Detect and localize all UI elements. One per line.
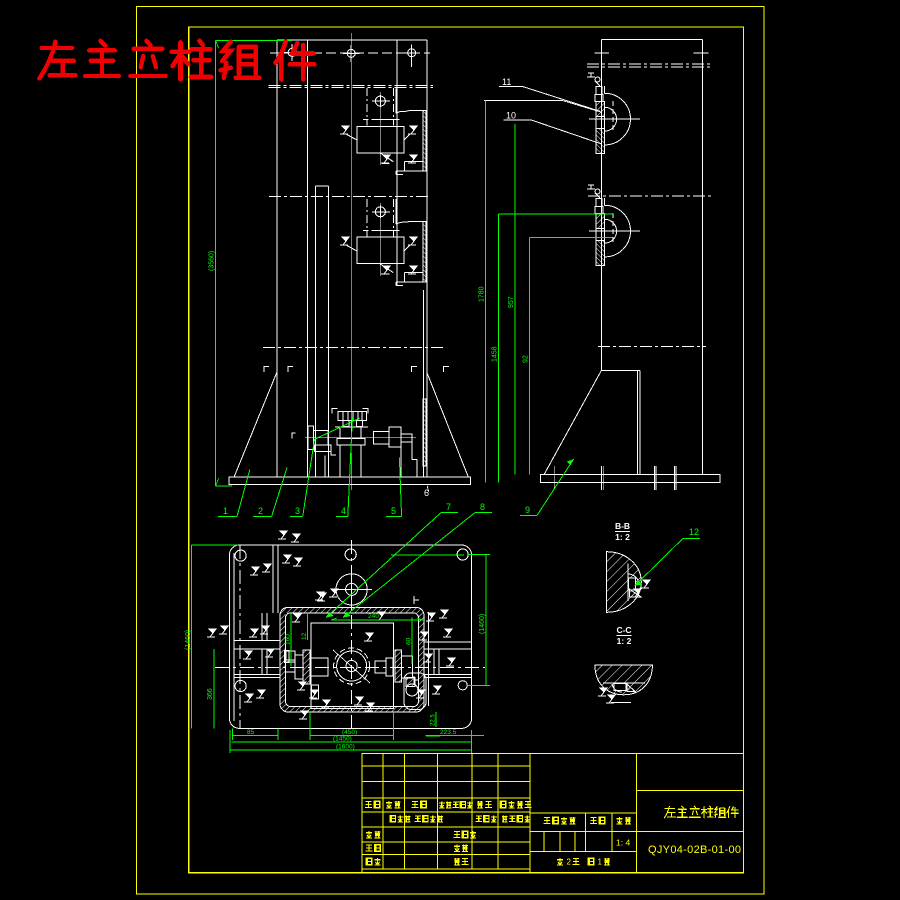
svg-text:1: 1: [598, 858, 603, 867]
svg-text:(1460): (1460): [185, 630, 192, 650]
svg-text:C-C: C-C: [616, 625, 631, 635]
svg-text:(1450): (1450): [333, 736, 352, 743]
svg-text:60: 60: [406, 637, 413, 645]
svg-text:(1460): (1460): [479, 614, 486, 634]
svg-text:8: 8: [480, 502, 485, 512]
svg-text:2: 2: [258, 506, 263, 516]
svg-text:10: 10: [506, 111, 516, 121]
svg-text:(1600): (1600): [336, 744, 355, 751]
svg-text:2: 2: [567, 858, 572, 867]
svg-text:3: 3: [295, 506, 300, 516]
svg-text:11: 11: [502, 77, 511, 87]
svg-text:85: 85: [247, 729, 255, 736]
svg-text:B-B: B-B: [615, 521, 630, 531]
svg-text:1: 2: 1: 2: [615, 532, 630, 542]
svg-text:5: 5: [391, 506, 396, 516]
svg-text:12: 12: [301, 632, 308, 640]
svg-text:1: 4: 1: 4: [616, 838, 630, 848]
svg-text:QJY04-02B-01-00: QJY04-02B-01-00: [648, 844, 741, 856]
svg-text:1458: 1458: [491, 346, 498, 362]
svg-text:9: 9: [525, 505, 530, 515]
svg-text:957: 957: [508, 296, 515, 308]
svg-text:7: 7: [446, 502, 451, 512]
svg-text:(3560): (3560): [209, 251, 216, 271]
svg-text:12: 12: [689, 527, 699, 537]
svg-text:240: 240: [368, 613, 379, 620]
svg-text:366: 366: [207, 688, 214, 700]
svg-text:4: 4: [341, 506, 346, 516]
svg-text:1: 2: 1: 2: [617, 636, 632, 646]
svg-text:160: 160: [285, 634, 292, 645]
svg-text:1: 1: [223, 506, 228, 516]
svg-text:1780: 1780: [479, 286, 486, 302]
svg-text:92: 92: [523, 355, 530, 363]
svg-text:223.5: 223.5: [440, 729, 457, 736]
svg-text:22.5: 22.5: [431, 714, 437, 726]
